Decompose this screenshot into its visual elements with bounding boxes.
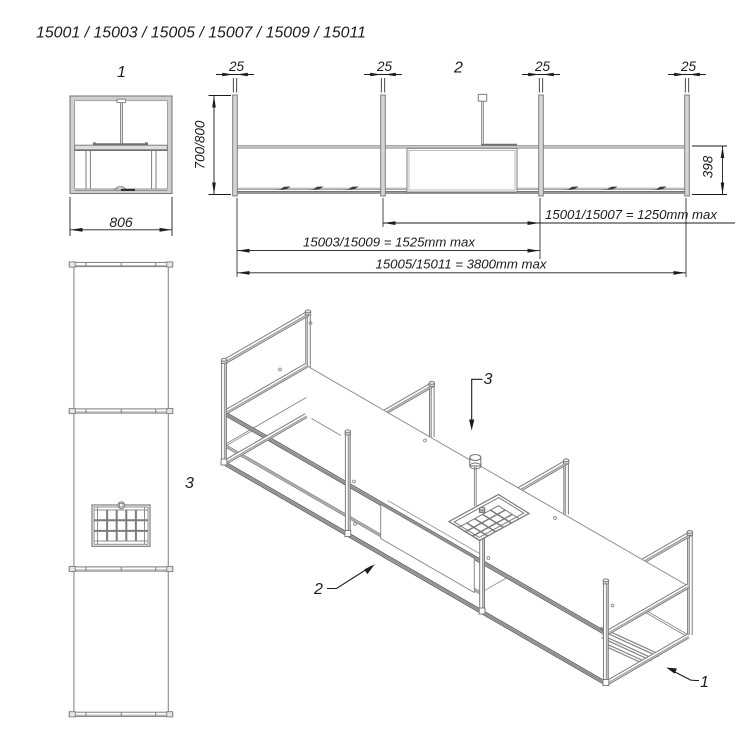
svg-text:15005/15011 = 3800mm max: 15005/15011 = 3800mm max xyxy=(376,257,547,272)
svg-text:3: 3 xyxy=(185,475,194,492)
svg-text:700/800: 700/800 xyxy=(193,120,208,169)
svg-text:25: 25 xyxy=(534,59,551,74)
svg-text:15001/15007 = 1250mm max: 15001/15007 = 1250mm max xyxy=(545,207,717,222)
svg-text:25: 25 xyxy=(680,59,697,74)
svg-text:25: 25 xyxy=(228,59,245,74)
svg-text:3: 3 xyxy=(484,371,493,388)
svg-text:15001 / 15003 / 15005 / 15007: 15001 / 15003 / 15005 / 15007 / 15009 / … xyxy=(36,25,366,42)
svg-text:15003/15009 = 1525mm max: 15003/15009 = 1525mm max xyxy=(303,234,475,249)
svg-text:2: 2 xyxy=(453,60,463,77)
svg-text:1: 1 xyxy=(700,674,709,691)
svg-text:806: 806 xyxy=(109,214,133,230)
svg-text:398: 398 xyxy=(701,155,716,178)
svg-text:1: 1 xyxy=(117,64,126,81)
svg-text:25: 25 xyxy=(376,59,393,74)
svg-text:2: 2 xyxy=(313,581,323,598)
